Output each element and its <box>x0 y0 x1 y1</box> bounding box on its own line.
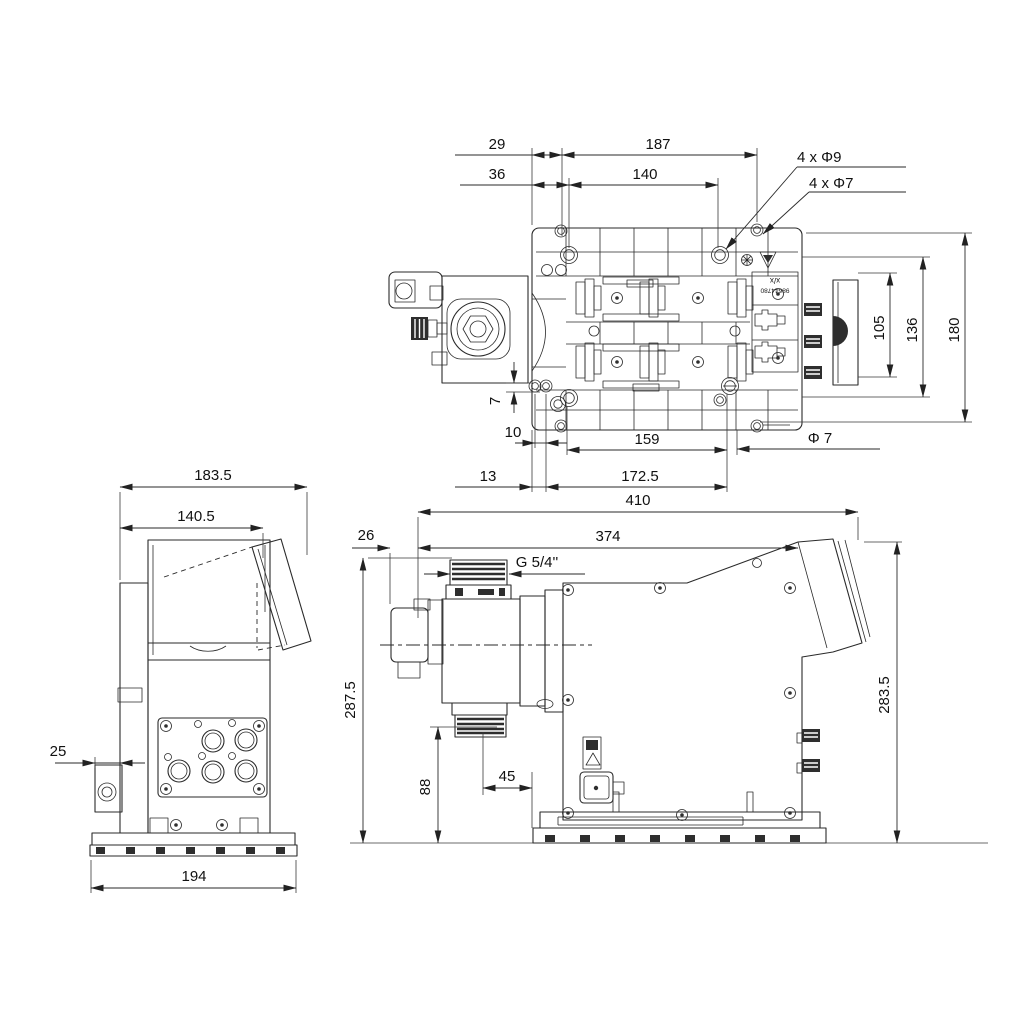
panel-button-icon <box>753 559 762 568</box>
dim-180: 180 <box>946 317 963 342</box>
dim-283-5: 283.5 <box>876 676 893 714</box>
knurled-knob-icon <box>411 317 428 340</box>
plate-cutout-arc <box>532 293 546 371</box>
recycle-icon <box>742 255 753 266</box>
cable-port <box>235 760 257 782</box>
cable-port <box>235 729 257 751</box>
pump-body-side <box>563 539 871 820</box>
note-d7: Φ 7 <box>808 430 832 447</box>
display-housing <box>148 539 311 660</box>
top-view: x/x 98644780 29 <box>389 136 972 492</box>
nameplate-text: x/x <box>770 276 780 285</box>
dim-140: 140 <box>632 166 657 183</box>
tilted-display-panel <box>252 539 311 650</box>
nameplate-partnumber: 98644780 <box>760 287 789 294</box>
note-4xd7: 4 x Φ7 <box>809 175 854 192</box>
dim-7: 7 <box>487 397 504 405</box>
dim-26: 26 <box>358 527 375 544</box>
dimensions-side: 410 374 26 G 5/4'' 287.5 88 45 283.5 <box>342 492 902 843</box>
dim-140-5: 140.5 <box>177 508 215 525</box>
discharge-thread <box>457 719 504 733</box>
nameplate: x/x 98644780 <box>752 272 798 372</box>
base-side <box>533 792 826 843</box>
cable-gland-side <box>391 599 443 678</box>
knurled-knob-icon <box>804 303 822 316</box>
dim-183-5: 183.5 <box>194 467 232 484</box>
dim-187: 187 <box>645 136 670 153</box>
click-wheel-icon <box>833 316 848 346</box>
suction-thread <box>452 564 505 579</box>
dim-36: 36 <box>489 166 506 183</box>
base-end <box>90 818 297 856</box>
cable-port <box>202 761 224 783</box>
wall-bracket <box>95 765 122 812</box>
knurled-knob-icon <box>802 729 820 742</box>
dim-287-5: 287.5 <box>342 681 359 719</box>
cable-gland-top <box>389 272 447 365</box>
dosing-head <box>380 560 592 737</box>
dimensional-drawing: x/x 98644780 29 <box>0 0 1024 1024</box>
dim-194: 194 <box>181 868 206 885</box>
note-thread: G 5/4'' <box>516 554 559 571</box>
cable-port <box>202 730 224 752</box>
pump-body-end <box>118 583 270 833</box>
side-view: 410 374 26 G 5/4'' 287.5 88 45 283.5 <box>342 492 988 843</box>
knurled-knob-icon <box>804 366 822 379</box>
mounting-plate: x/x 98644780 <box>529 224 802 432</box>
dim-29: 29 <box>489 136 506 153</box>
warning-label <box>583 737 601 769</box>
display-open-position <box>164 547 285 650</box>
dim-10: 10 <box>505 424 522 441</box>
cable-port <box>168 760 190 782</box>
end-view: 183.5 140.5 25 194 <box>50 467 311 893</box>
dim-159: 159 <box>634 431 659 448</box>
dim-374: 374 <box>595 528 620 545</box>
note-4xd9: 4 x Φ9 <box>797 149 842 166</box>
knurled-knob-icon <box>804 335 822 348</box>
tube-clamps <box>576 279 753 381</box>
knurled-knob-icon <box>802 759 820 772</box>
dim-105: 105 <box>871 315 888 340</box>
dim-172-5: 172.5 <box>621 468 659 485</box>
dimensions-end: 183.5 140.5 25 194 <box>50 467 307 893</box>
dim-45: 45 <box>499 768 516 785</box>
control-panel-top <box>804 280 858 385</box>
connection-plate <box>158 718 267 797</box>
technical-drawing-page: x/x 98644780 29 <box>0 0 1024 1024</box>
dim-25: 25 <box>50 743 67 760</box>
hose-barb-fitting <box>755 342 785 362</box>
hose-barb-fitting <box>755 310 785 330</box>
dim-13: 13 <box>480 468 497 485</box>
dim-136: 136 <box>904 317 921 342</box>
dim-88: 88 <box>417 779 434 796</box>
valve-hex-nut <box>463 316 493 342</box>
dim-410: 410 <box>625 492 650 509</box>
mains-connector <box>580 772 624 803</box>
pump-head-top <box>442 276 528 383</box>
